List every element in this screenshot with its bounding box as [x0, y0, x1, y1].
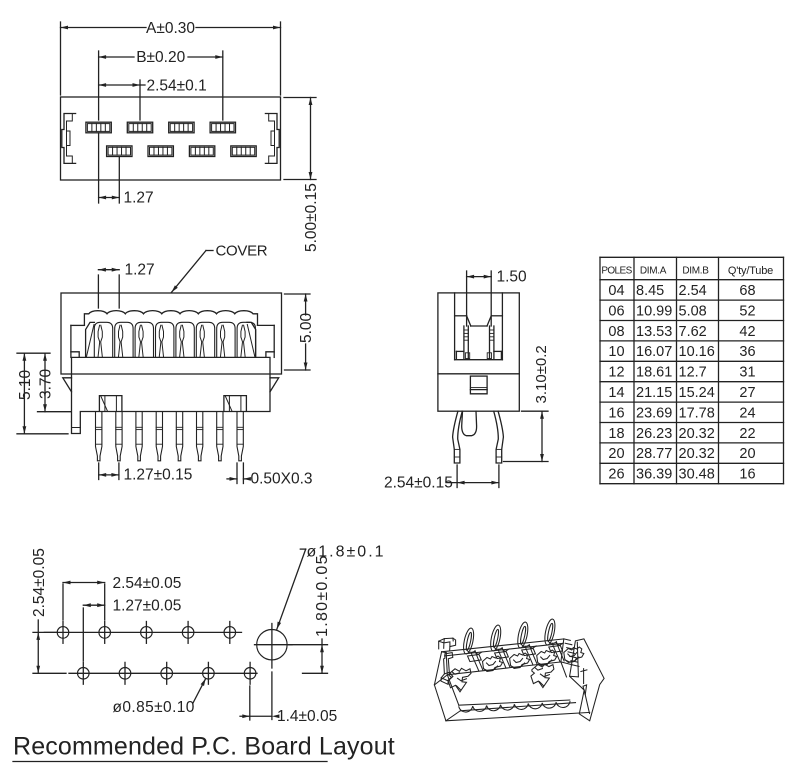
svg-text:5.10: 5.10: [17, 369, 34, 400]
svg-text:B±0.20: B±0.20: [136, 49, 185, 66]
svg-text:7.62: 7.62: [679, 324, 707, 340]
svg-text:22: 22: [739, 426, 755, 442]
svg-text:24: 24: [739, 405, 755, 421]
svg-text:12.7: 12.7: [679, 365, 707, 381]
svg-text:52: 52: [739, 303, 755, 319]
svg-text:0.50X0.3: 0.50X0.3: [251, 471, 313, 488]
svg-text:1.27±0.05: 1.27±0.05: [113, 598, 182, 615]
svg-text:13.53: 13.53: [636, 324, 672, 340]
svg-text:5.00±0.15: 5.00±0.15: [303, 183, 320, 252]
svg-text:14: 14: [608, 385, 624, 401]
svg-text:2.54±0.05: 2.54±0.05: [31, 548, 48, 617]
svg-text:1.27: 1.27: [124, 189, 154, 206]
svg-text:20: 20: [608, 446, 624, 462]
svg-text:06: 06: [608, 303, 624, 319]
svg-text:42: 42: [739, 324, 755, 340]
svg-text:1.80±0.05: 1.80±0.05: [314, 554, 331, 637]
svg-text:16: 16: [608, 405, 624, 421]
svg-text:10.99: 10.99: [636, 303, 672, 319]
svg-text:16.07: 16.07: [636, 344, 672, 360]
svg-text:2.54±0.05: 2.54±0.05: [113, 575, 182, 592]
svg-text:36.39: 36.39: [636, 467, 672, 483]
svg-text:68: 68: [739, 283, 755, 299]
svg-text:10.16: 10.16: [679, 344, 715, 360]
svg-text:1.4±0.05: 1.4±0.05: [277, 708, 337, 725]
svg-text:28.77: 28.77: [636, 446, 672, 462]
svg-text:31: 31: [739, 365, 755, 381]
svg-text:8.45: 8.45: [636, 283, 664, 299]
svg-text:2.54±0.1: 2.54±0.1: [147, 77, 207, 94]
svg-text:10: 10: [608, 344, 624, 360]
svg-text:1.27±0.15: 1.27±0.15: [124, 467, 193, 484]
svg-text:04: 04: [608, 283, 624, 299]
svg-text:23.69: 23.69: [636, 405, 672, 421]
svg-text:20.32: 20.32: [679, 446, 715, 462]
svg-text:15.24: 15.24: [679, 385, 715, 401]
svg-text:18: 18: [608, 426, 624, 442]
svg-text:COVER: COVER: [216, 243, 268, 260]
svg-text:08: 08: [608, 324, 624, 340]
svg-text:2.54: 2.54: [679, 283, 707, 299]
svg-text:3.70: 3.70: [38, 368, 55, 399]
svg-text:26: 26: [608, 467, 624, 483]
svg-text:5.00: 5.00: [298, 312, 315, 343]
svg-text:2.54±0.15: 2.54±0.15: [384, 475, 453, 492]
svg-text:DIM.B: DIM.B: [682, 266, 709, 277]
svg-text:26.23: 26.23: [636, 426, 672, 442]
svg-text:Q'ty/Tube: Q'ty/Tube: [728, 265, 773, 277]
svg-text:36: 36: [739, 344, 755, 360]
svg-text:17.78: 17.78: [679, 405, 715, 421]
svg-text:DIM.A: DIM.A: [640, 266, 667, 277]
svg-text:18.61: 18.61: [636, 365, 672, 381]
svg-text:12: 12: [608, 365, 624, 381]
svg-text:1.50: 1.50: [497, 269, 528, 286]
svg-text:A±0.30: A±0.30: [146, 20, 195, 37]
svg-text:Recommended P.C. Board Layout: Recommended P.C. Board Layout: [13, 733, 395, 761]
svg-text:16: 16: [739, 467, 755, 483]
svg-text:20: 20: [739, 446, 755, 462]
svg-text:POLES: POLES: [601, 266, 632, 277]
svg-text:ø0.85±0.10: ø0.85±0.10: [113, 699, 195, 716]
svg-text:30.48: 30.48: [679, 467, 715, 483]
svg-text:1.27: 1.27: [125, 262, 155, 279]
svg-text:5.08: 5.08: [679, 303, 707, 319]
svg-text:3.10±0.2: 3.10±0.2: [533, 345, 550, 403]
svg-text:21.15: 21.15: [636, 385, 672, 401]
svg-text:27: 27: [739, 385, 755, 401]
svg-text:20.32: 20.32: [679, 426, 715, 442]
